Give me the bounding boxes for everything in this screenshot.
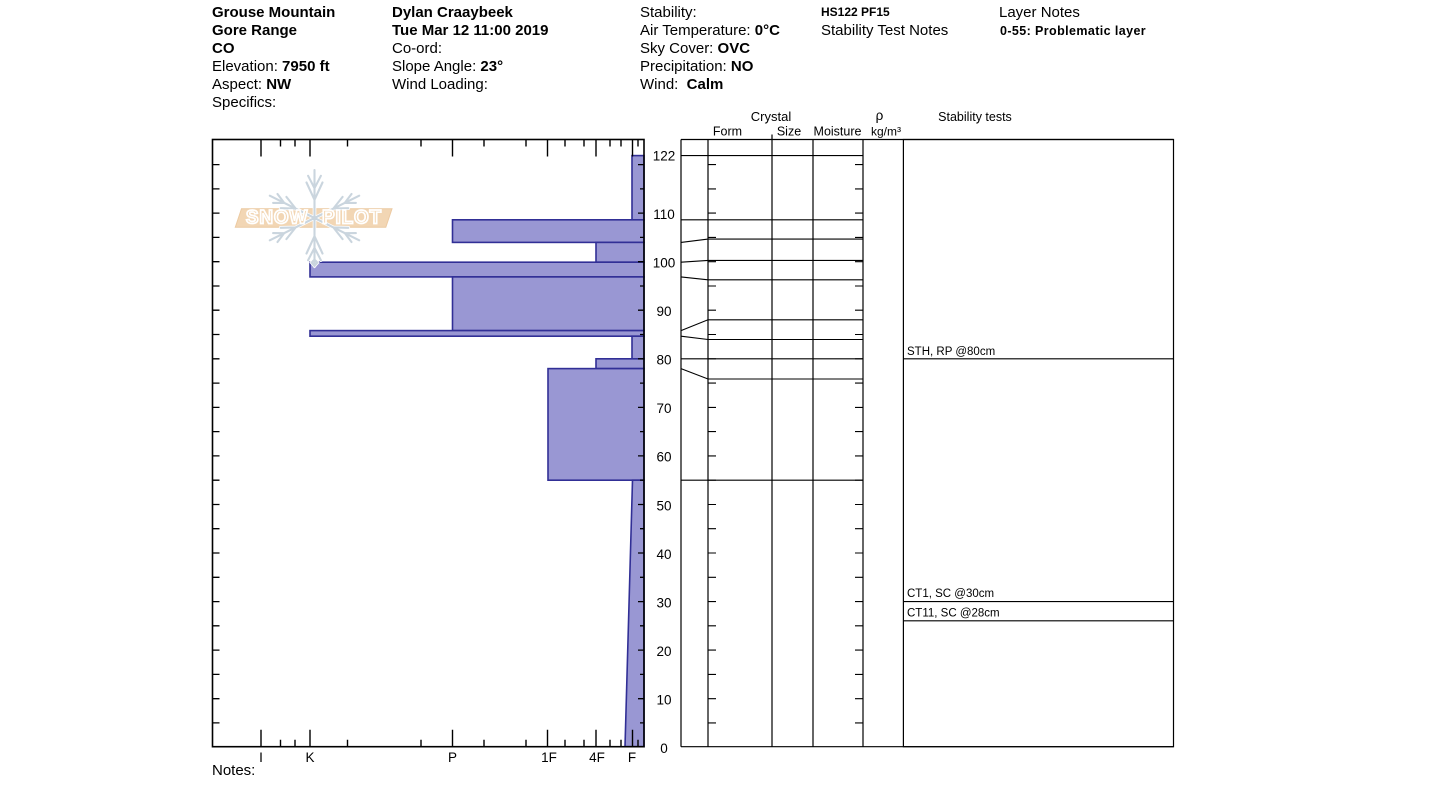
svg-text:CO: CO — [212, 40, 235, 57]
svg-text:I: I — [259, 750, 263, 765]
svg-text:Elevation: 7950 ft: Elevation: 7950 ft — [212, 58, 330, 75]
svg-text:ρ: ρ — [876, 108, 884, 123]
svg-text:P: P — [448, 750, 457, 765]
svg-text:100: 100 — [653, 256, 676, 271]
svg-text:Form: Form — [713, 125, 742, 139]
svg-text:Specifics:: Specifics: — [212, 94, 276, 111]
svg-text:Stability Test Notes: Stability Test Notes — [821, 22, 948, 39]
svg-text:Layer Notes: Layer Notes — [999, 4, 1080, 21]
svg-text:F: F — [628, 750, 636, 765]
svg-text:Aspect: NW: Aspect: NW — [212, 76, 292, 93]
svg-text:Size: Size — [777, 125, 801, 139]
svg-text:Precipitation: NO: Precipitation: NO — [640, 58, 754, 75]
svg-text:K: K — [305, 750, 314, 765]
svg-text:Wind: Calm: Wind: Calm — [640, 76, 723, 93]
svg-text:10: 10 — [656, 693, 671, 708]
svg-text:Stability:: Stability: — [640, 4, 697, 21]
svg-text:STH, RP @80cm: STH, RP @80cm — [907, 346, 995, 358]
svg-text:Crystal: Crystal — [751, 109, 792, 124]
svg-text:CT11, SC @28cm: CT11, SC @28cm — [907, 608, 1000, 620]
svg-text:80: 80 — [656, 353, 671, 368]
svg-text:70: 70 — [656, 401, 671, 416]
svg-text:40: 40 — [656, 547, 671, 562]
svg-text:Gore Range: Gore Range — [212, 22, 297, 39]
svg-text:Sky Cover: OVC: Sky Cover: OVC — [640, 40, 750, 57]
svg-text:Moisture: Moisture — [814, 125, 862, 139]
svg-text:4F: 4F — [589, 750, 605, 765]
svg-text:90: 90 — [656, 304, 671, 319]
svg-text:SNOW: SNOW — [246, 208, 308, 229]
svg-text:Air Temperature: 0°C: Air Temperature: 0°C — [640, 22, 780, 39]
svg-text:Dylan Craaybeek: Dylan Craaybeek — [392, 4, 514, 21]
svg-text:PILOT: PILOT — [322, 208, 382, 229]
svg-text:Tue Mar 12 11:00 2019: Tue Mar 12 11:00 2019 — [392, 22, 549, 39]
svg-text:1F: 1F — [541, 750, 557, 765]
svg-text:0-55: Problematic layer: 0-55: Problematic layer — [1000, 24, 1146, 38]
svg-text:0: 0 — [660, 741, 668, 756]
svg-text:HS122 PF15: HS122 PF15 — [821, 5, 890, 19]
svg-text:20: 20 — [656, 644, 671, 659]
svg-text:110: 110 — [653, 207, 675, 222]
svg-text:Slope Angle: 23°: Slope Angle: 23° — [392, 58, 503, 75]
svg-text:kg/m³: kg/m³ — [871, 125, 901, 139]
svg-text:50: 50 — [656, 498, 671, 513]
svg-text:Notes:: Notes: — [212, 762, 255, 779]
svg-text:Stability tests: Stability tests — [938, 110, 1012, 124]
svg-text:122: 122 — [653, 149, 676, 164]
svg-text:60: 60 — [656, 450, 671, 465]
svg-text:Wind Loading:: Wind Loading: — [392, 76, 488, 93]
svg-text:30: 30 — [656, 595, 671, 610]
svg-text:Grouse Mountain: Grouse Mountain — [212, 4, 335, 21]
svg-text:Co-ord:: Co-ord: — [392, 40, 442, 57]
svg-text:CT1, SC @30cm: CT1, SC @30cm — [907, 588, 994, 600]
